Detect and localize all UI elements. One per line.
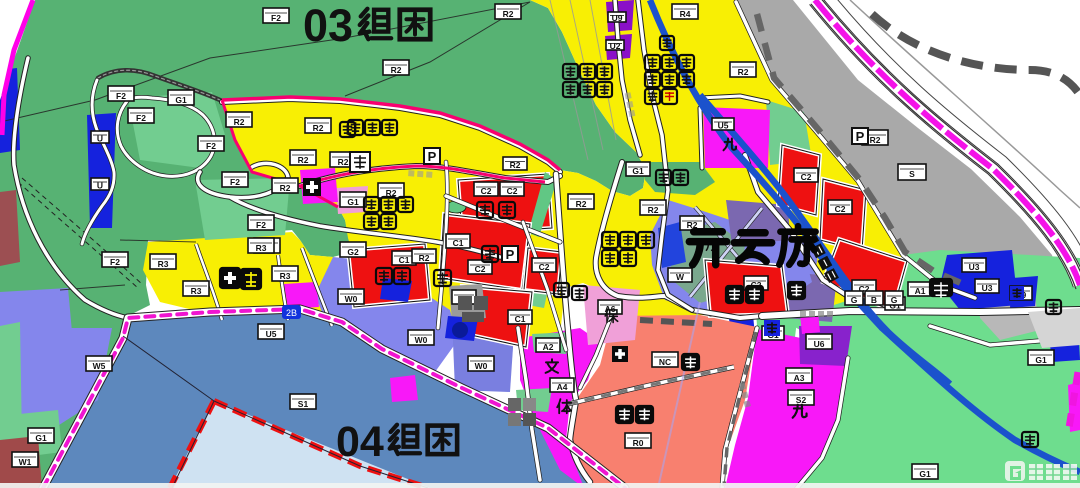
svg-text:W1: W1 [19,457,32,467]
svg-text:U3: U3 [969,262,980,272]
svg-text:R2: R2 [419,253,430,263]
svg-text:A1: A1 [915,286,926,296]
svg-text:U5: U5 [718,121,729,131]
svg-text:S2: S2 [796,395,807,405]
svg-text:G1: G1 [632,166,644,176]
svg-text:C2: C2 [835,204,846,214]
svg-text:R2: R2 [391,65,402,75]
svg-text:04: 04 [336,418,384,466]
svg-text:R2: R2 [738,67,749,77]
svg-text:W0: W0 [475,361,488,371]
svg-text:F2: F2 [256,220,266,230]
svg-text:F2: F2 [206,141,216,151]
svg-text:C2: C2 [507,186,518,196]
svg-text:U: U [97,181,103,191]
svg-text:C2: C2 [475,264,486,274]
svg-text:F2: F2 [271,13,281,23]
svg-text:U2: U2 [610,41,621,51]
svg-text:R2: R2 [280,183,291,193]
svg-text:G2: G2 [347,247,359,257]
svg-text:P: P [856,129,865,144]
svg-text:W: W [676,272,685,282]
svg-text:P: P [506,247,515,262]
svg-text:A3: A3 [794,373,805,383]
svg-text:A2: A2 [543,342,554,352]
svg-text:C2: C2 [481,186,492,196]
svg-text:R2: R2 [510,160,521,170]
svg-text:R3: R3 [191,286,202,296]
svg-text:R2: R2 [648,205,659,215]
svg-text:G1: G1 [175,95,187,105]
svg-text:C1: C1 [515,314,526,324]
svg-text:F2: F2 [230,177,240,187]
svg-text:G1: G1 [1035,355,1047,365]
svg-text:U9: U9 [612,13,623,23]
svg-text:R0: R0 [633,438,644,448]
svg-text:G1: G1 [347,197,359,207]
svg-text:C2: C2 [539,262,550,272]
svg-text:U: U [97,134,103,144]
svg-text:2B: 2B [286,308,297,318]
svg-text:R2: R2 [338,157,349,167]
svg-text:G1: G1 [35,433,47,443]
svg-text:R2: R2 [234,117,245,127]
svg-text:R3: R3 [280,271,291,281]
svg-text:C1: C1 [399,255,410,265]
svg-text:R4: R4 [680,9,691,19]
svg-text:F2: F2 [110,257,120,267]
svg-text:G: G [851,295,858,305]
svg-text:P: P [428,149,437,164]
svg-text:F2: F2 [116,91,126,101]
svg-text:R2: R2 [870,135,881,145]
svg-text:NC: NC [659,357,671,367]
svg-text:U6: U6 [814,339,825,349]
svg-text:W0: W0 [345,294,358,304]
svg-text:W0: W0 [415,335,428,345]
svg-text:R2: R2 [576,199,587,209]
svg-text:W5: W5 [93,361,106,371]
svg-text:U3: U3 [982,283,993,293]
svg-text:F2: F2 [136,113,146,123]
svg-text:C1: C1 [453,238,464,248]
svg-text:A4: A4 [557,382,568,392]
svg-text:G: G [891,295,898,305]
svg-text:S: S [909,169,915,179]
svg-text:G1: G1 [919,469,931,479]
svg-text:R3: R3 [158,259,169,269]
svg-text:U5: U5 [266,329,277,339]
svg-text:R2: R2 [503,9,514,19]
svg-text:R3: R3 [256,243,267,253]
svg-text:03: 03 [303,0,353,51]
svg-text:R2: R2 [313,123,324,133]
svg-text:R2: R2 [298,155,309,165]
svg-text:S1: S1 [298,399,309,409]
svg-text:B: B [871,295,877,305]
svg-text:C2: C2 [801,172,812,182]
